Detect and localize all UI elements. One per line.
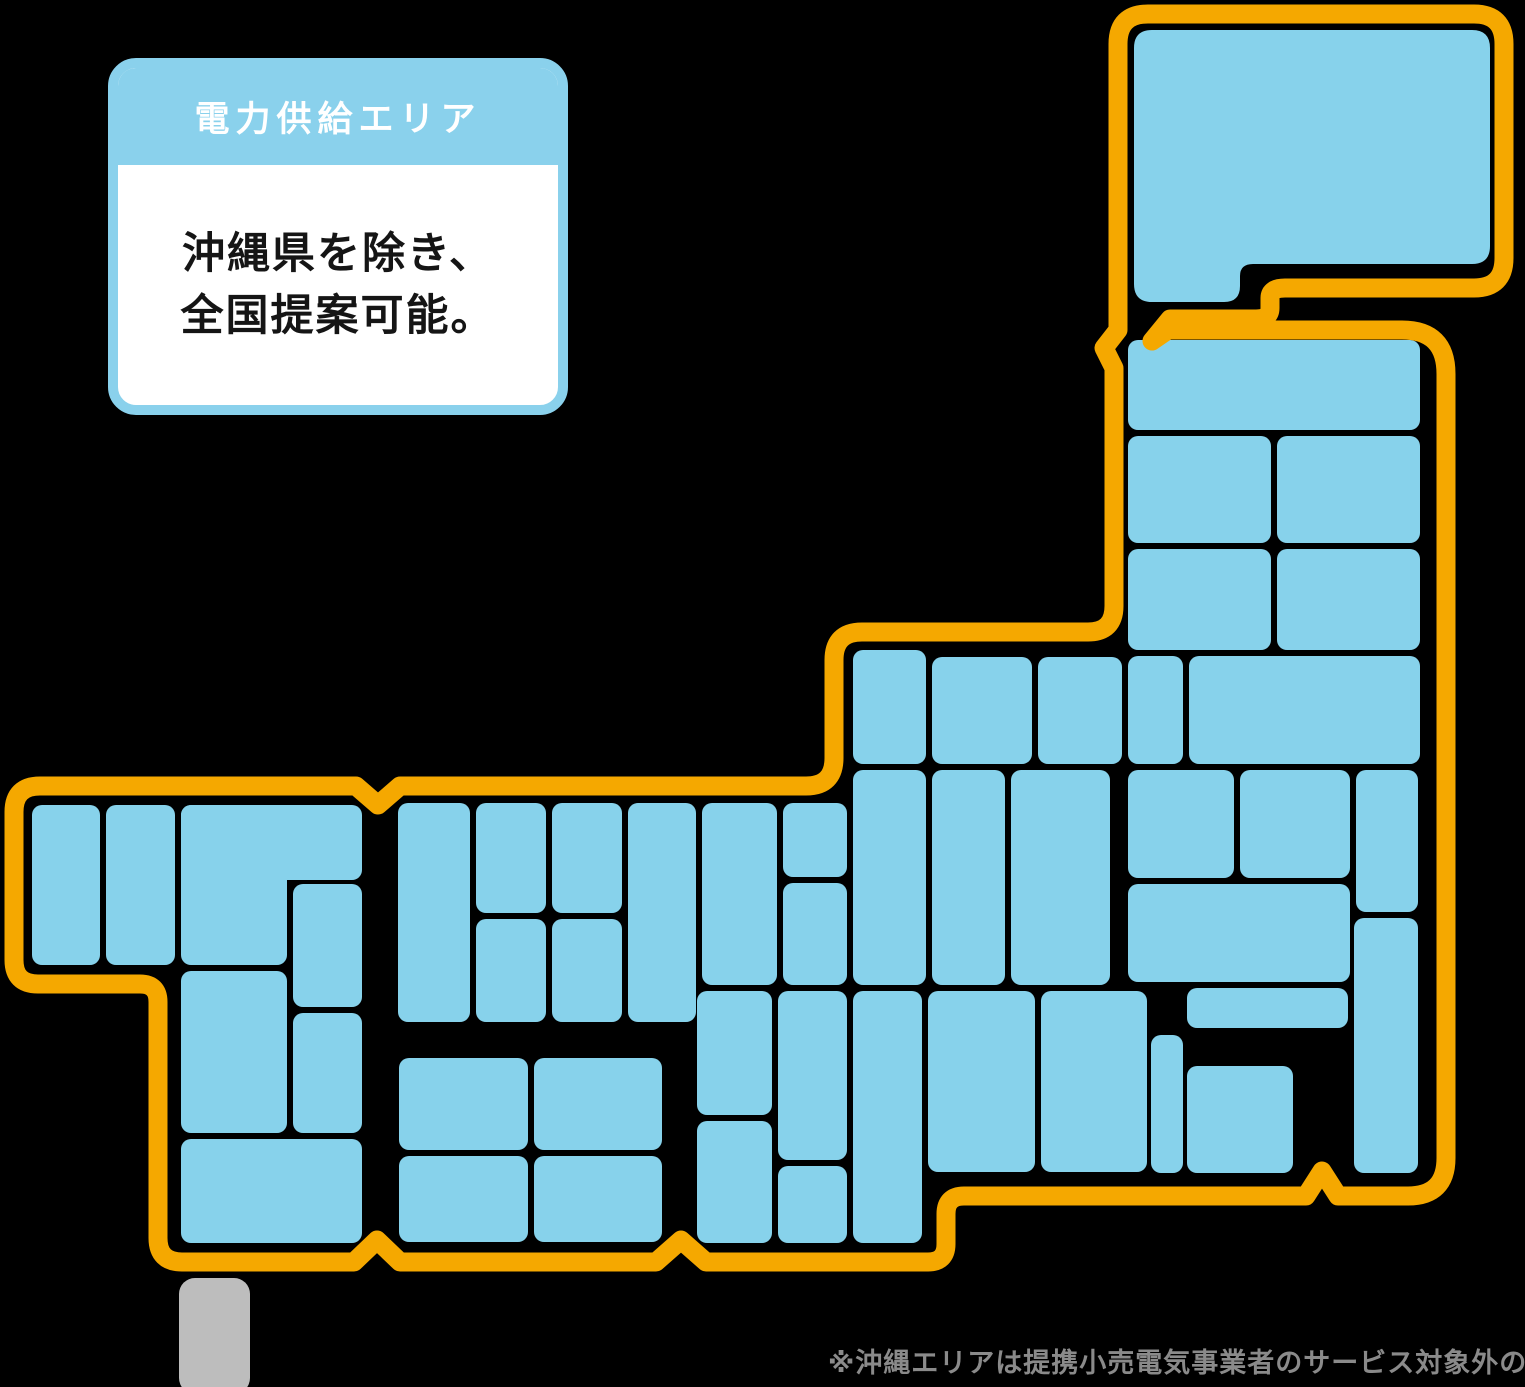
region-kanto-chubu-cell-1	[853, 650, 926, 764]
region-kansai-cell-4	[778, 1166, 847, 1243]
region-kansai-cell-5	[853, 991, 922, 1243]
region-chugoku-cell-3	[476, 919, 546, 1022]
region-kanto-chubu-cell-3	[1038, 657, 1122, 764]
region-kyushu-cell-4	[181, 805, 287, 965]
region-hokkaido-cell	[1134, 30, 1490, 302]
region-shikoku-cell-4	[534, 1156, 662, 1242]
region-tohoku-cell-6	[1128, 656, 1183, 764]
region-tohoku-cell-5	[1277, 549, 1420, 650]
region-kanto-chubu-cell-6	[1011, 770, 1110, 985]
region-chugoku-cell-2	[476, 803, 546, 913]
region-kyushu-cell-5	[293, 884, 362, 1007]
region-kanto-chubu-cell-8	[1240, 770, 1350, 878]
region-kyushu-cell-8	[181, 1139, 362, 1243]
region-kansai-cell-6	[928, 991, 1035, 1172]
region-chugoku-cell-7	[702, 803, 777, 985]
region-kansai-cell-1	[697, 991, 772, 1115]
region-kyushu-cell-7	[293, 1013, 362, 1133]
card-body-line-2: 全国提案可能。	[181, 285, 496, 347]
card-title: 電力供給エリア	[194, 91, 481, 142]
card-body-line-1: 沖縄県を除き、	[182, 223, 494, 285]
region-kanto-chubu-cell-14	[1187, 1066, 1293, 1173]
region-kyushu-cell-1	[32, 805, 100, 965]
region-kanto-chubu-cell-9	[1356, 770, 1418, 912]
region-kanto-chubu-cell-13	[1151, 1035, 1183, 1173]
region-tohoku-cell-4	[1128, 549, 1271, 650]
region-tohoku-cell-2	[1128, 436, 1271, 543]
region-kanto-chubu-cell-5	[932, 770, 1005, 985]
region-chugoku-cell-8	[783, 803, 847, 877]
region-tohoku-cell-3	[1277, 436, 1420, 543]
region-kyushu-cell-6	[181, 971, 287, 1133]
region-shikoku-cell-2	[534, 1058, 662, 1150]
region-kanto-chubu-cell-2	[932, 657, 1032, 764]
region-tohoku-cell-7	[1189, 656, 1420, 764]
region-shikoku-cell-1	[399, 1058, 528, 1150]
region-chugoku-cell-9	[783, 883, 847, 985]
region-chugoku-cell-5	[552, 919, 622, 1022]
region-shikoku-cell-3	[399, 1156, 528, 1242]
region-chugoku-cell-1	[398, 803, 470, 1022]
region-tohoku-cell-1	[1128, 340, 1420, 430]
supply-area-card: 電力供給エリア 沖縄県を除き、 全国提案可能。	[108, 58, 568, 415]
region-kansai-cell-2	[778, 991, 847, 1160]
region-kansai-cell-7	[1041, 991, 1147, 1172]
okinawa-footnote: ※沖縄エリアは提携小売電気事業者のサービス対象外のため	[828, 1341, 1525, 1380]
region-kyushu-cell-2	[106, 805, 175, 965]
region-kanto-chubu-cell-11	[1354, 918, 1418, 1173]
card-body: 沖縄県を除き、 全国提案可能。	[118, 165, 558, 405]
card-header: 電力供給エリア	[118, 68, 558, 165]
region-okinawa-cell-excluded	[179, 1278, 250, 1387]
region-kansai-cell-3	[697, 1121, 772, 1243]
region-kanto-chubu-cell-10	[1128, 884, 1350, 982]
region-kanto-chubu-cell-7	[1128, 770, 1234, 878]
power-supply-area-infographic: 電力供給エリア 沖縄県を除き、 全国提案可能。 ※沖縄エリアは提携小売電気事業者…	[0, 0, 1525, 1387]
region-kanto-chubu-cell-12	[1187, 988, 1348, 1028]
region-chugoku-cell-6	[628, 803, 696, 1022]
region-kanto-chubu-cell-4	[853, 770, 926, 985]
region-chugoku-cell-4	[552, 803, 622, 913]
